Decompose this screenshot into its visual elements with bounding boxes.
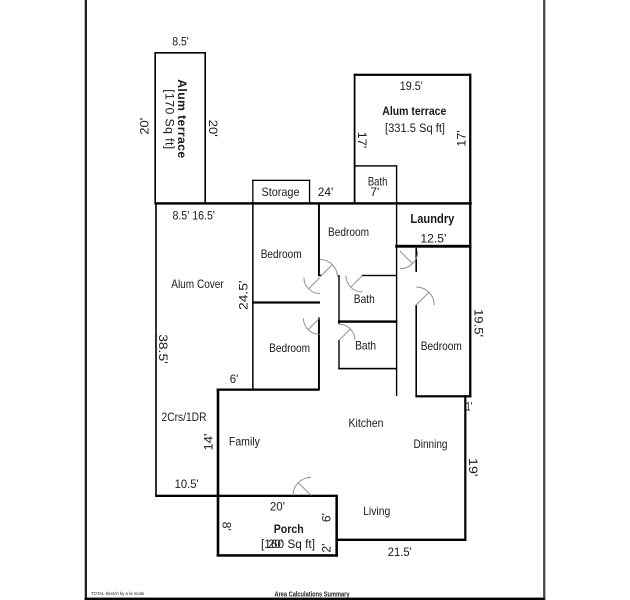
svg-text:Storage: Storage (262, 185, 300, 199)
svg-text:TOTAL Sketch by a la mode: TOTAL Sketch by a la mode (91, 591, 145, 596)
svg-text:21.5': 21.5' (388, 545, 412, 559)
svg-text:12.5': 12.5' (420, 231, 446, 245)
svg-text:17': 17' (355, 132, 369, 149)
svg-text:Alum Cover: Alum Cover (171, 277, 224, 291)
svg-text:[331.5 Sq ft]: [331.5 Sq ft] (385, 121, 445, 135)
svg-text:10.5': 10.5' (175, 477, 199, 491)
svg-text:6': 6' (320, 513, 334, 522)
svg-text:1': 1' (466, 399, 473, 413)
svg-text:7': 7' (370, 187, 379, 199)
svg-text:[170 Sq ft]: [170 Sq ft] (162, 89, 176, 149)
svg-text:14': 14' (201, 434, 215, 451)
svg-text:8': 8' (219, 522, 233, 531)
svg-text:6': 6' (230, 372, 239, 386)
svg-text:Porch: Porch (274, 522, 304, 536)
svg-text:Bedroom: Bedroom (421, 339, 462, 353)
svg-text:24': 24' (318, 185, 334, 199)
svg-text:2Crs/1DR: 2Crs/1DR (162, 410, 207, 424)
svg-text:Kitchen: Kitchen (349, 416, 384, 430)
svg-text:19.5': 19.5' (471, 309, 485, 337)
svg-text:17': 17' (454, 130, 468, 147)
svg-text:Family: Family (229, 434, 260, 448)
svg-text:20': 20' (270, 500, 285, 514)
svg-text:20': 20' (206, 120, 220, 137)
svg-text:19': 19' (466, 458, 480, 477)
svg-text:20': 20' (138, 118, 152, 135)
svg-text:Bedroom: Bedroom (328, 225, 369, 239)
svg-text:Area Calculations Summary: Area Calculations Summary (275, 589, 351, 598)
svg-text:Bath: Bath (354, 292, 375, 306)
svg-text:19.5': 19.5' (400, 79, 423, 93)
svg-text:8.5': 8.5' (172, 35, 189, 49)
svg-text:Living: Living (363, 504, 390, 518)
svg-text:2': 2' (320, 544, 334, 553)
svg-text:Alum terrace: Alum terrace (382, 104, 446, 118)
svg-text:Bedroom: Bedroom (269, 341, 310, 355)
svg-text:Bedroom: Bedroom (261, 247, 302, 261)
svg-text:Laundry: Laundry (410, 212, 454, 226)
svg-text:Dinning: Dinning (414, 437, 448, 451)
svg-text:8.5' 16.5': 8.5' 16.5' (172, 208, 215, 222)
svg-text:38.5': 38.5' (156, 334, 170, 364)
svg-text:20': 20' (268, 537, 283, 551)
svg-text:Bath: Bath (355, 339, 376, 353)
svg-text:24.5': 24.5' (236, 280, 250, 310)
